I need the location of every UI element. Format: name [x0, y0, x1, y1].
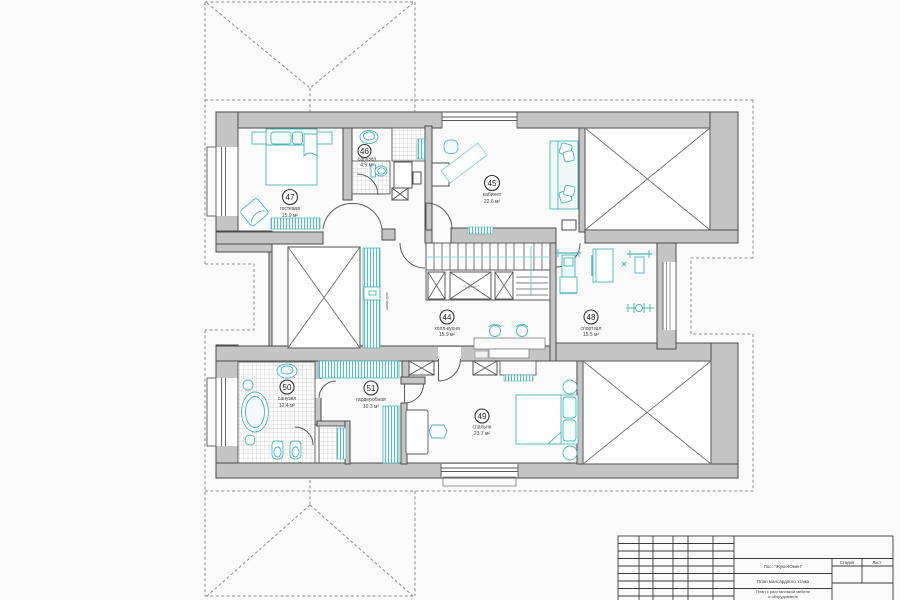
svg-text:15.5 м²: 15.5 м²: [583, 332, 600, 338]
svg-text:44: 44: [443, 313, 452, 322]
svg-text:15.9 м²: 15.9 м²: [439, 332, 456, 338]
svg-text:23.7 м²: 23.7 м²: [474, 431, 491, 437]
svg-text:и оборудования: и оборудования: [768, 594, 798, 599]
svg-text:50: 50: [283, 383, 292, 392]
svg-text:47: 47: [286, 193, 295, 202]
svg-text:48: 48: [587, 313, 596, 322]
svg-text:22.6 м²: 22.6 м²: [484, 199, 501, 205]
svg-text:15.9 м²: 15.9 м²: [282, 213, 299, 219]
svg-text:Лист: Лист: [872, 560, 881, 565]
svg-text:12.4 м²: 12.4 м²: [279, 403, 296, 409]
svg-text:спальня: спальня: [473, 425, 492, 431]
svg-text:санузел: санузел: [278, 396, 296, 402]
svg-text:шкаф-купе: шкаф-купе: [385, 292, 389, 310]
svg-text:10.3 м²: 10.3 м²: [363, 404, 380, 410]
svg-text:51: 51: [367, 384, 376, 393]
svg-text:Стадия: Стадия: [840, 560, 854, 565]
svg-text:46: 46: [360, 147, 369, 156]
svg-text:4.9 м²: 4.9 м²: [360, 163, 374, 169]
svg-text:49: 49: [478, 412, 487, 421]
svg-text:План мансардного этажа: План мансардного этажа: [757, 579, 810, 584]
svg-text:45: 45: [488, 179, 497, 188]
svg-text:Подъём: Подъём: [464, 285, 477, 289]
svg-text:гостевая: гостевая: [280, 206, 300, 212]
svg-text:гардеробная: гардеробная: [356, 397, 386, 403]
svg-text:кабинет: кабинет: [483, 192, 502, 198]
svg-text:Пос. "Жуки-Юмен": Пос. "Жуки-Юмен": [764, 564, 803, 569]
